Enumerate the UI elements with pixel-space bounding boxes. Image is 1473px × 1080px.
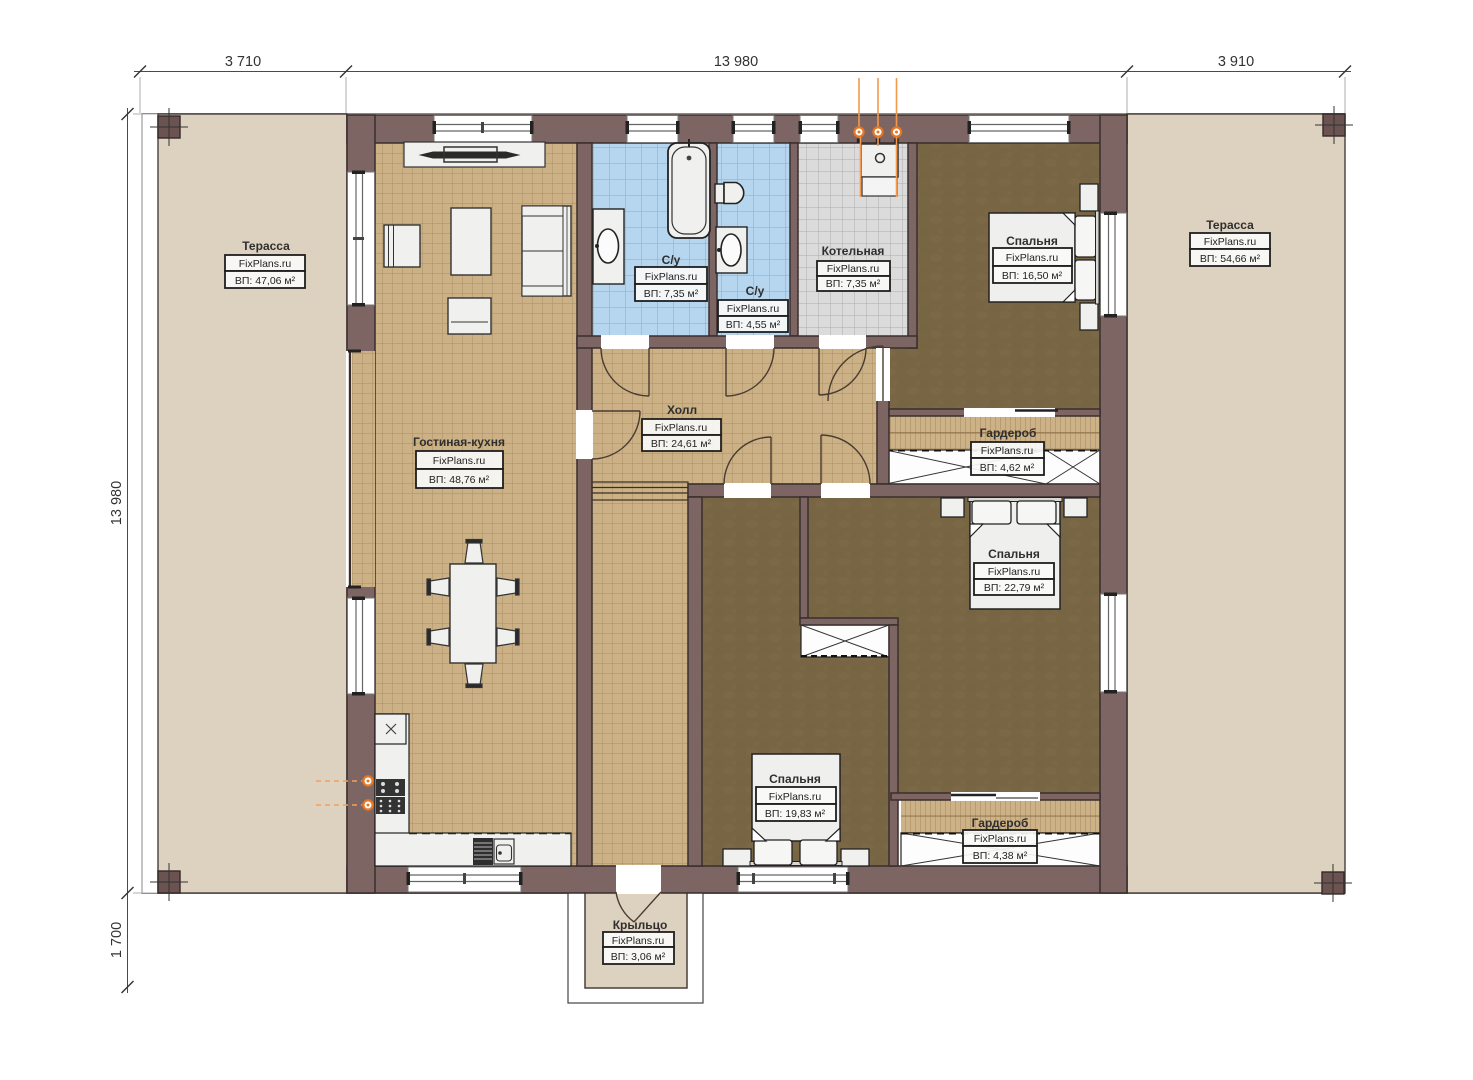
svg-text:3 910: 3 910: [1218, 54, 1254, 70]
svg-text:Гардероб: Гардероб: [980, 426, 1037, 440]
svg-text:ВП: 48,76 м²: ВП: 48,76 м²: [429, 474, 490, 486]
svg-text:Терасса: Терасса: [242, 239, 290, 253]
svg-text:13 980: 13 980: [109, 481, 125, 525]
svg-text:ВП: 16,50 м²: ВП: 16,50 м²: [1002, 270, 1063, 282]
svg-text:FixPlans.ru: FixPlans.ru: [612, 935, 665, 947]
svg-text:FixPlans.ru: FixPlans.ru: [1006, 252, 1059, 264]
svg-text:С/у: С/у: [662, 253, 681, 267]
svg-text:FixPlans.ru: FixPlans.ru: [827, 263, 880, 275]
svg-text:13 980: 13 980: [714, 54, 758, 70]
svg-text:С/у: С/у: [746, 284, 765, 298]
svg-text:FixPlans.ru: FixPlans.ru: [974, 833, 1027, 845]
svg-text:FixPlans.ru: FixPlans.ru: [727, 303, 780, 315]
svg-text:FixPlans.ru: FixPlans.ru: [981, 445, 1034, 457]
svg-text:Крыльцо: Крыльцо: [613, 918, 668, 932]
svg-text:Котельная: Котельная: [822, 244, 885, 258]
svg-text:ВП: 47,06 м²: ВП: 47,06 м²: [235, 275, 296, 287]
svg-text:Спальня: Спальня: [988, 547, 1040, 561]
svg-text:ВП: 7,35 м²: ВП: 7,35 м²: [644, 288, 699, 300]
svg-text:FixPlans.ru: FixPlans.ru: [645, 271, 698, 283]
svg-text:Холл: Холл: [667, 403, 697, 417]
svg-text:Гостиная-кухня: Гостиная-кухня: [413, 435, 505, 449]
svg-text:FixPlans.ru: FixPlans.ru: [433, 455, 486, 467]
svg-text:FixPlans.ru: FixPlans.ru: [1204, 236, 1257, 248]
svg-text:3 710: 3 710: [225, 54, 261, 70]
svg-text:ВП: 7,35 м²: ВП: 7,35 м²: [826, 278, 881, 290]
svg-text:ВП: 3,06 м²: ВП: 3,06 м²: [611, 951, 666, 963]
svg-text:ВП: 4,55 м²: ВП: 4,55 м²: [726, 319, 781, 331]
svg-text:Гардероб: Гардероб: [972, 816, 1029, 830]
svg-text:ВП: 4,38 м²: ВП: 4,38 м²: [973, 850, 1028, 862]
svg-text:Спальня: Спальня: [1006, 234, 1058, 248]
svg-text:ВП: 4,62 м²: ВП: 4,62 м²: [980, 462, 1035, 474]
svg-text:FixPlans.ru: FixPlans.ru: [988, 566, 1041, 578]
svg-text:FixPlans.ru: FixPlans.ru: [655, 422, 708, 434]
svg-text:ВП: 22,79 м²: ВП: 22,79 м²: [984, 582, 1045, 594]
svg-text:ВП: 19,83 м²: ВП: 19,83 м²: [765, 808, 826, 820]
svg-text:Спальня: Спальня: [769, 772, 821, 786]
svg-text:ВП: 54,66 м²: ВП: 54,66 м²: [1200, 253, 1261, 265]
svg-text:FixPlans.ru: FixPlans.ru: [769, 791, 822, 803]
svg-text:ВП: 24,61 м²: ВП: 24,61 м²: [651, 438, 712, 450]
svg-text:1 700: 1 700: [109, 922, 125, 958]
svg-text:FixPlans.ru: FixPlans.ru: [239, 258, 292, 270]
svg-text:Терасса: Терасса: [1206, 218, 1254, 232]
